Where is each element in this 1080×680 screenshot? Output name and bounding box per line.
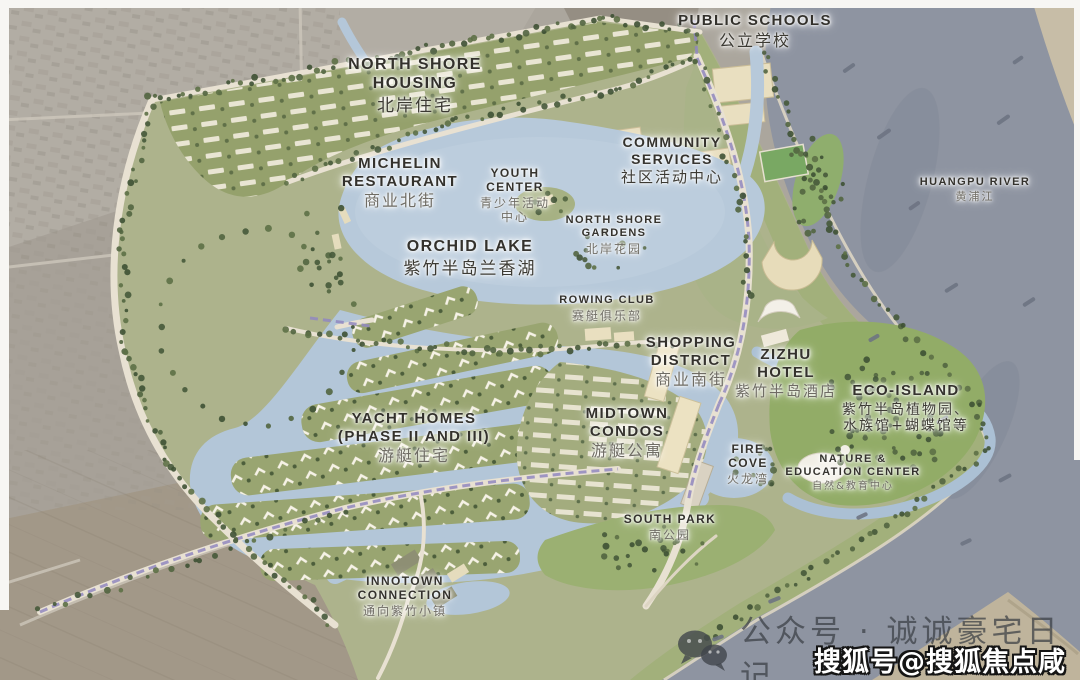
wechat-icon — [676, 629, 728, 673]
master-plan-screenshot: PUBLIC SCHOOLS公立学校NORTH SHOREHOUSING北岸住宅… — [0, 0, 1080, 680]
master-plan-map — [0, 0, 1080, 680]
sohu-watermark-text: 搜狐号@搜狐焦点咸宁站 — [814, 640, 1080, 680]
